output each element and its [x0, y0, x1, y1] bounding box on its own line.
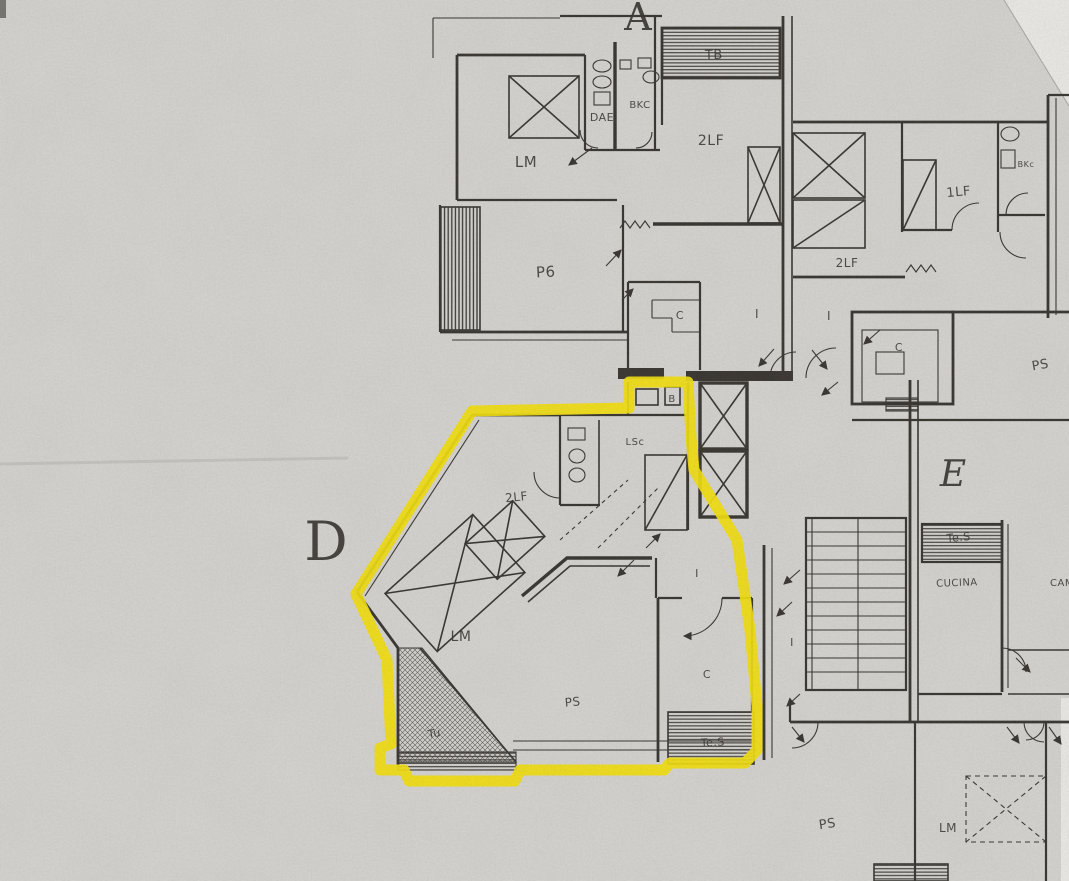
floor-plan-svg: TBDAEBKCLM2LF1LFBKc2LFP6CIICPS2LFBLScLMP… [0, 0, 1069, 881]
floor-plan-scan: TBDAEBKCLM2LF1LFBKc2LFP6CIICPS2LFBLScLMP… [0, 0, 1069, 881]
scan-blotch-overlay [0, 0, 1069, 881]
